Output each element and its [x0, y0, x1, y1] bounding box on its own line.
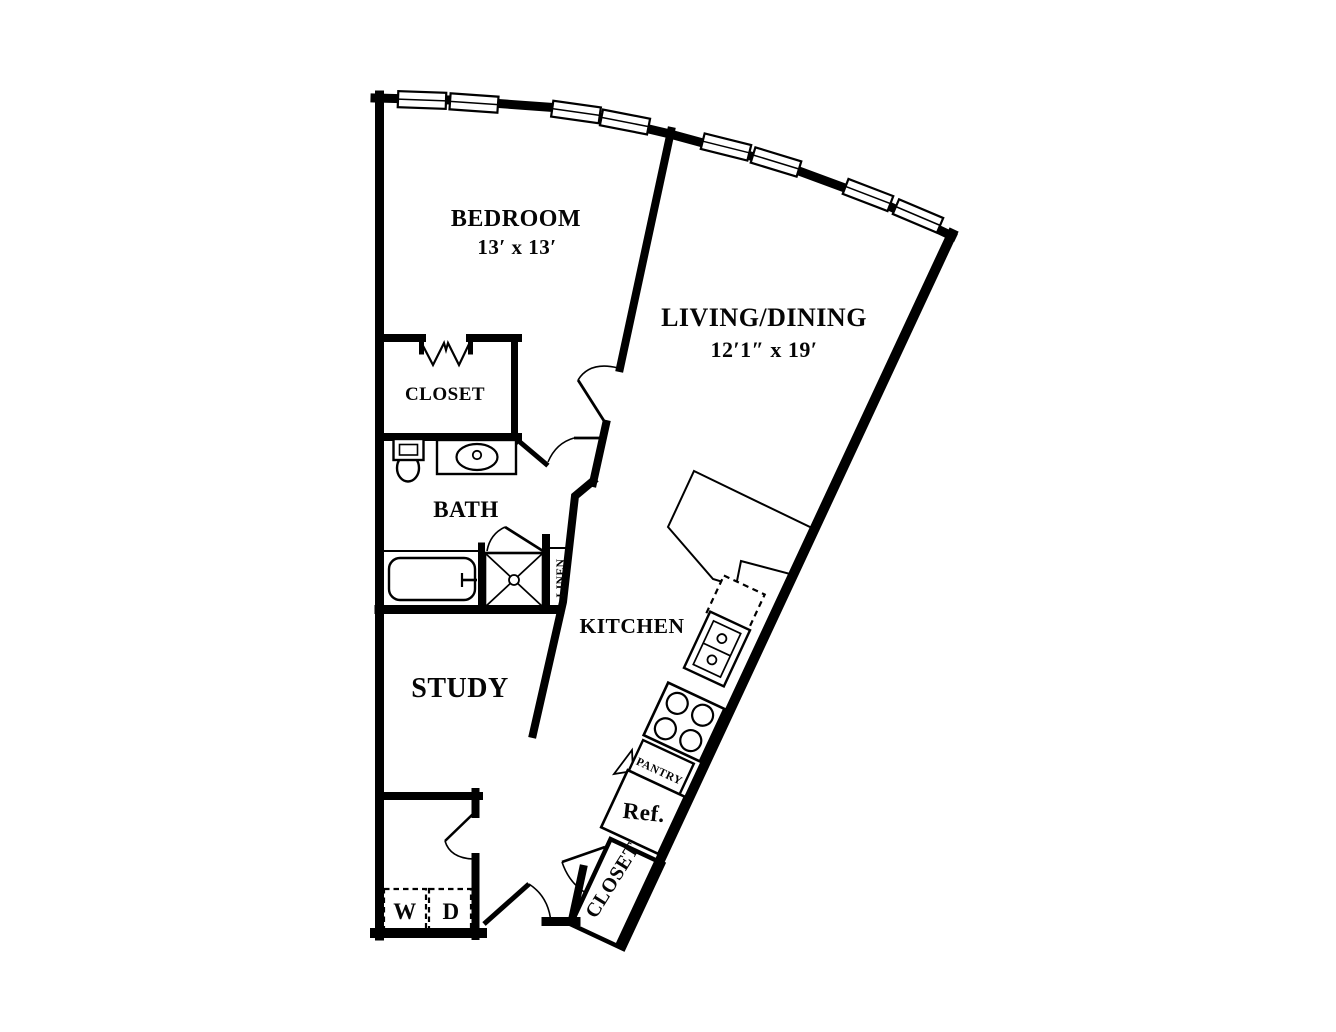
kitchen-label: KITCHEN: [579, 614, 684, 638]
living-dining-dimensions: 12′1″ x 19′: [710, 337, 817, 362]
bath-fixtures: [382, 439, 570, 607]
window-symbol: [843, 179, 894, 211]
shower-icon: [485, 553, 543, 607]
study-label: STUDY: [411, 673, 508, 704]
bath-label: BATH: [433, 497, 498, 522]
bedroom-door: [578, 366, 618, 424]
entry-door: [484, 884, 551, 924]
window-symbol: [701, 133, 751, 160]
bedroom-dimensions: 13′ x 13′: [477, 235, 556, 259]
window-symbol: [600, 110, 650, 135]
wall-bedroom-living-divider: [620, 131, 671, 368]
linen-label: LINEN: [555, 558, 567, 597]
window-symbol: [751, 147, 802, 176]
laundry-door: [445, 813, 474, 859]
kitchen-counter: [668, 471, 812, 586]
floor-plan: PANTRY BEDROOM 13′ x 13′ LIVING/DINING 1…: [0, 0, 1336, 1032]
window-symbol: [450, 93, 499, 112]
bedroom-closet-label: CLOSET: [405, 384, 485, 405]
refrigerator-label: Ref.: [622, 798, 667, 827]
wall-vestibule-east: [593, 424, 606, 483]
shower-door: [487, 527, 543, 551]
toilet-tank-icon: [394, 439, 424, 460]
window-symbol: [551, 101, 601, 124]
bedroom-label: BEDROOM: [451, 206, 581, 232]
dryer-label: D: [442, 899, 459, 924]
wall-bath-door-jamb: [514, 437, 546, 464]
bath-door: [548, 438, 602, 462]
window-symbol: [893, 199, 943, 232]
window-symbol: [398, 91, 447, 109]
bedroom-closet-bifold-doors: [421, 342, 470, 365]
floor-plan-drawing: PANTRY BEDROOM 13′ x 13′ LIVING/DINING 1…: [0, 0, 1336, 1032]
living-dining-label: LIVING/DINING: [661, 303, 867, 332]
washer-label: W: [393, 899, 417, 924]
